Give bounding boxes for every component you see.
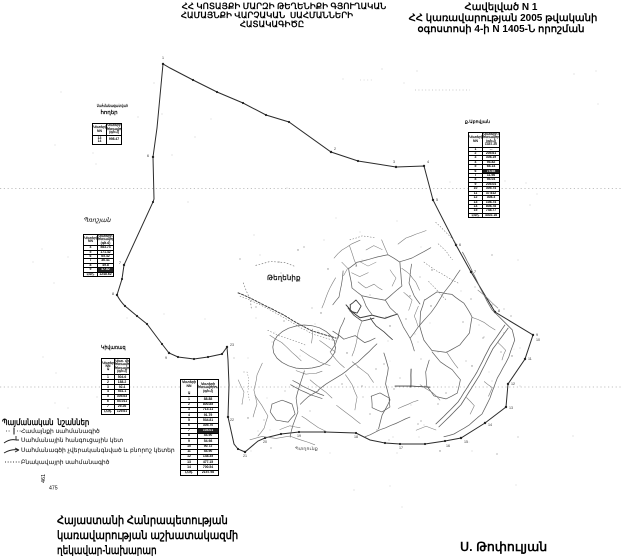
- svg-text:8: 8: [112, 292, 114, 296]
- svg-text:5: 5: [436, 198, 438, 202]
- svg-text:461: 461: [41, 474, 47, 483]
- svg-text:7: 7: [474, 270, 476, 274]
- svg-text:23: 23: [230, 343, 234, 347]
- svg-text:6: 6: [147, 154, 149, 158]
- svg-text:15: 15: [464, 440, 468, 444]
- svg-text:21: 21: [243, 454, 247, 458]
- svg-text:10: 10: [536, 338, 540, 342]
- svg-text:13: 13: [509, 406, 513, 410]
- svg-text:16: 16: [446, 444, 450, 448]
- svg-text:20: 20: [263, 440, 267, 444]
- svg-text:9: 9: [165, 356, 167, 360]
- svg-text:2: 2: [334, 147, 336, 151]
- svg-text:475: 475: [49, 486, 58, 492]
- svg-text:19: 19: [297, 434, 301, 438]
- svg-text:4: 4: [427, 160, 429, 164]
- svg-text:18: 18: [354, 435, 358, 439]
- svg-text:Թեղենիք: Թեղենիք: [267, 273, 301, 282]
- svg-text:3: 3: [393, 160, 395, 164]
- svg-text:14: 14: [488, 423, 492, 427]
- svg-text:Պտղունք: Պտղունք: [295, 446, 318, 451]
- svg-text:17: 17: [399, 446, 403, 450]
- svg-text:9: 9: [536, 333, 538, 337]
- svg-text:7: 7: [119, 261, 121, 265]
- svg-text:1: 1: [162, 56, 164, 60]
- svg-text:12: 12: [511, 382, 515, 386]
- svg-text:6: 6: [459, 243, 461, 247]
- svg-text:8: 8: [498, 309, 500, 313]
- svg-text:11: 11: [528, 357, 532, 361]
- svg-text:22: 22: [230, 418, 234, 422]
